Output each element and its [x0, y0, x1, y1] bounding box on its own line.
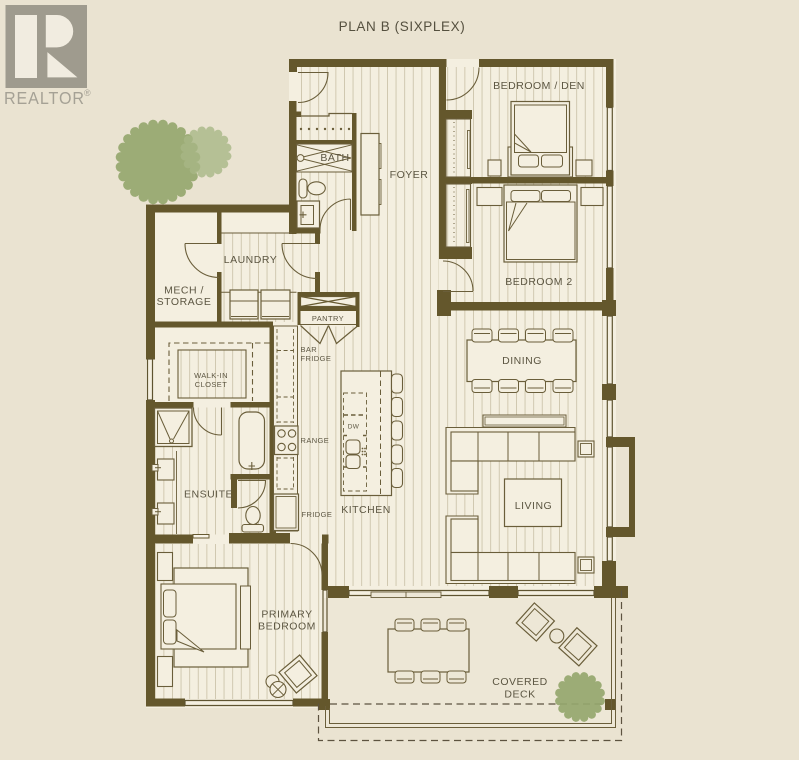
svg-text:FRIDGE: FRIDGE — [301, 354, 332, 363]
svg-text:ENSUITE: ENSUITE — [184, 489, 233, 501]
svg-text:MECH /: MECH / — [164, 285, 204, 297]
svg-text:BEDROOM: BEDROOM — [258, 621, 316, 633]
svg-text:RANGE: RANGE — [301, 436, 330, 445]
svg-text:STORAGE: STORAGE — [157, 296, 212, 308]
svg-text:BAR: BAR — [301, 345, 318, 354]
svg-text:LIVING: LIVING — [515, 500, 552, 512]
svg-text:®: ® — [84, 88, 91, 98]
svg-text:PANTRY: PANTRY — [312, 314, 344, 323]
svg-text:COVERED: COVERED — [492, 676, 547, 688]
svg-text:PRIMARY: PRIMARY — [261, 609, 312, 621]
svg-text:PLAN B (SIXPLEX): PLAN B (SIXPLEX) — [339, 19, 466, 34]
svg-text:KITCHEN: KITCHEN — [341, 504, 391, 516]
svg-text:DW: DW — [348, 424, 360, 431]
svg-text:FRIDGE: FRIDGE — [302, 510, 333, 519]
svg-text:WALK-IN: WALK-IN — [194, 371, 228, 380]
svg-text:DECK: DECK — [504, 689, 535, 701]
svg-text:CLOSET: CLOSET — [195, 380, 227, 389]
svg-text:BEDROOM 2: BEDROOM 2 — [505, 276, 573, 288]
svg-text:FOYER: FOYER — [390, 169, 429, 181]
svg-text:BEDROOM / DEN: BEDROOM / DEN — [493, 80, 585, 92]
svg-text:BATH: BATH — [320, 152, 349, 164]
svg-text:LAUNDRY: LAUNDRY — [224, 254, 278, 266]
svg-text:DINING: DINING — [502, 355, 542, 367]
svg-text:REALTOR: REALTOR — [4, 88, 85, 108]
